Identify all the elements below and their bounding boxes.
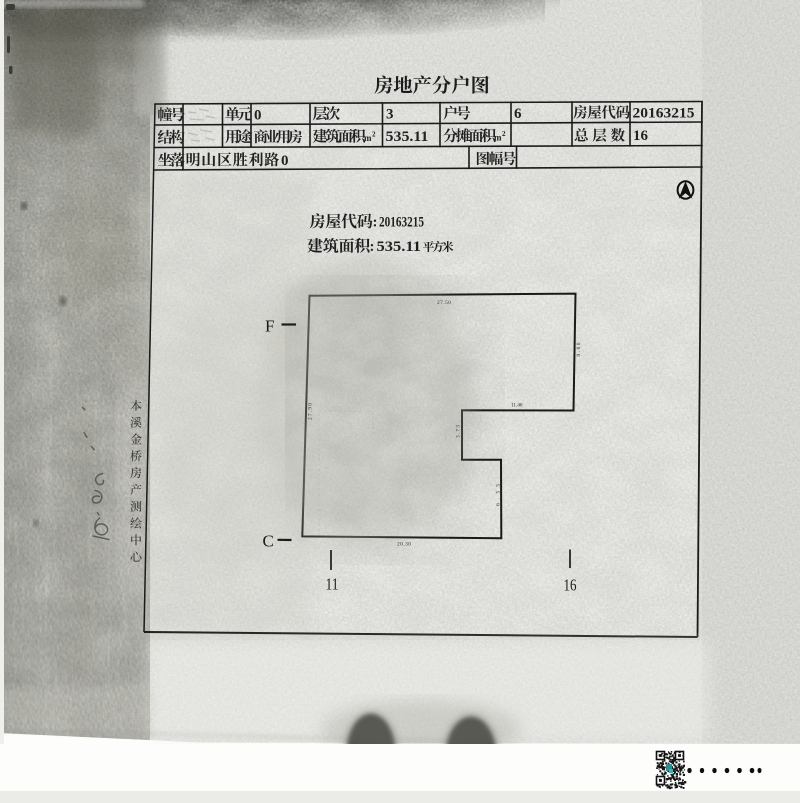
svg-text:11.40: 11.40 (511, 403, 523, 409)
svg-text::: : (373, 215, 378, 231)
svg-text:9.60: 9.60 (576, 342, 582, 356)
svg-text:0: 0 (254, 108, 262, 124)
svg-text:27.90: 27.90 (308, 403, 314, 420)
svg-text:F: F (265, 317, 274, 336)
svg-text:m: m (494, 133, 502, 143)
svg-text:0: 0 (281, 153, 289, 169)
svg-text:20163215: 20163215 (633, 106, 695, 122)
svg-text::: : (370, 239, 375, 255)
svg-text:2: 2 (372, 131, 376, 139)
svg-text:2: 2 (502, 130, 506, 138)
svg-text:16: 16 (564, 576, 577, 595)
svg-text:20163215: 20163215 (379, 215, 424, 231)
svg-text:535.11: 535.11 (386, 129, 429, 145)
svg-text:3.73: 3.73 (456, 425, 462, 438)
svg-text:C: C (263, 532, 274, 551)
svg-text:20.30: 20.30 (397, 542, 411, 548)
svg-text:535.11: 535.11 (377, 239, 422, 255)
svg-text:3: 3 (386, 107, 394, 123)
svg-text:m: m (364, 133, 372, 143)
svg-text:6: 6 (514, 106, 522, 122)
svg-text:11: 11 (326, 575, 339, 594)
svg-text:27.50: 27.50 (437, 300, 451, 306)
svg-text:16: 16 (633, 128, 649, 144)
